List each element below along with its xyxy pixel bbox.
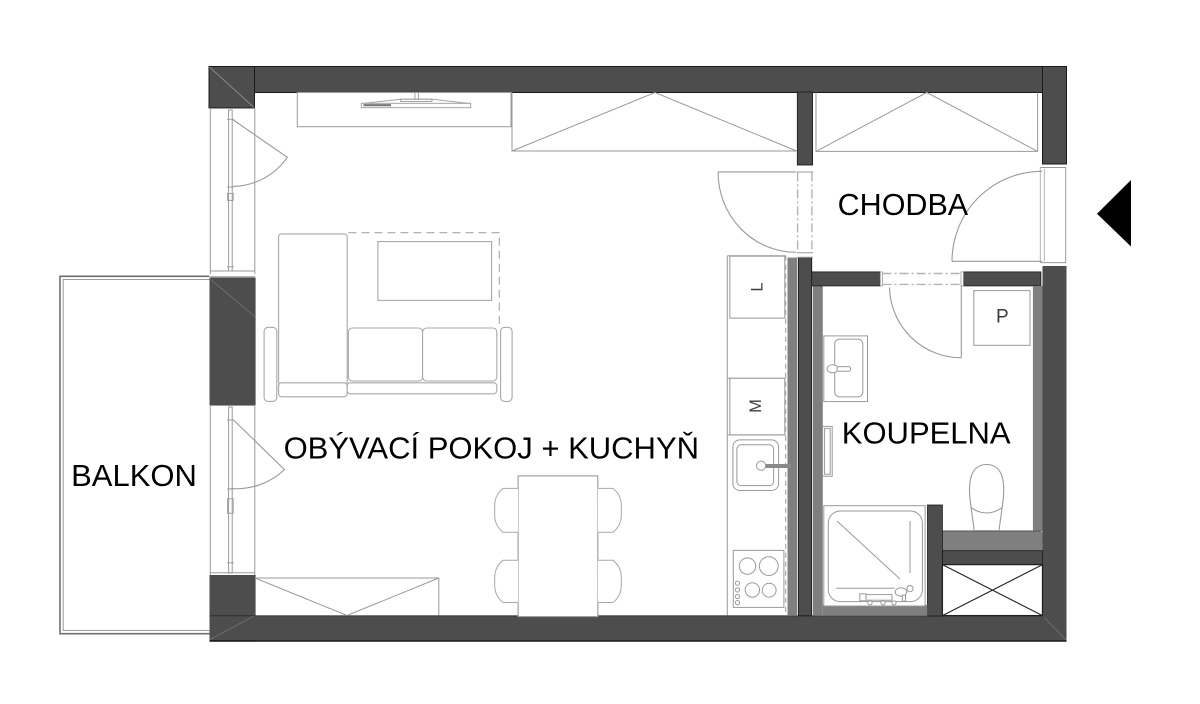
svg-text:L: L xyxy=(748,282,766,291)
svg-text:P: P xyxy=(996,306,1009,327)
svg-text:BALKON: BALKON xyxy=(71,458,197,493)
svg-text:CHODBA: CHODBA xyxy=(838,188,969,222)
svg-text:KOUPELNA: KOUPELNA xyxy=(842,416,1011,451)
svg-text:M: M xyxy=(747,399,765,413)
svg-text:OBÝVACÍ POKOJ + KUCHYŇ: OBÝVACÍ POKOJ + KUCHYŇ xyxy=(284,430,699,465)
